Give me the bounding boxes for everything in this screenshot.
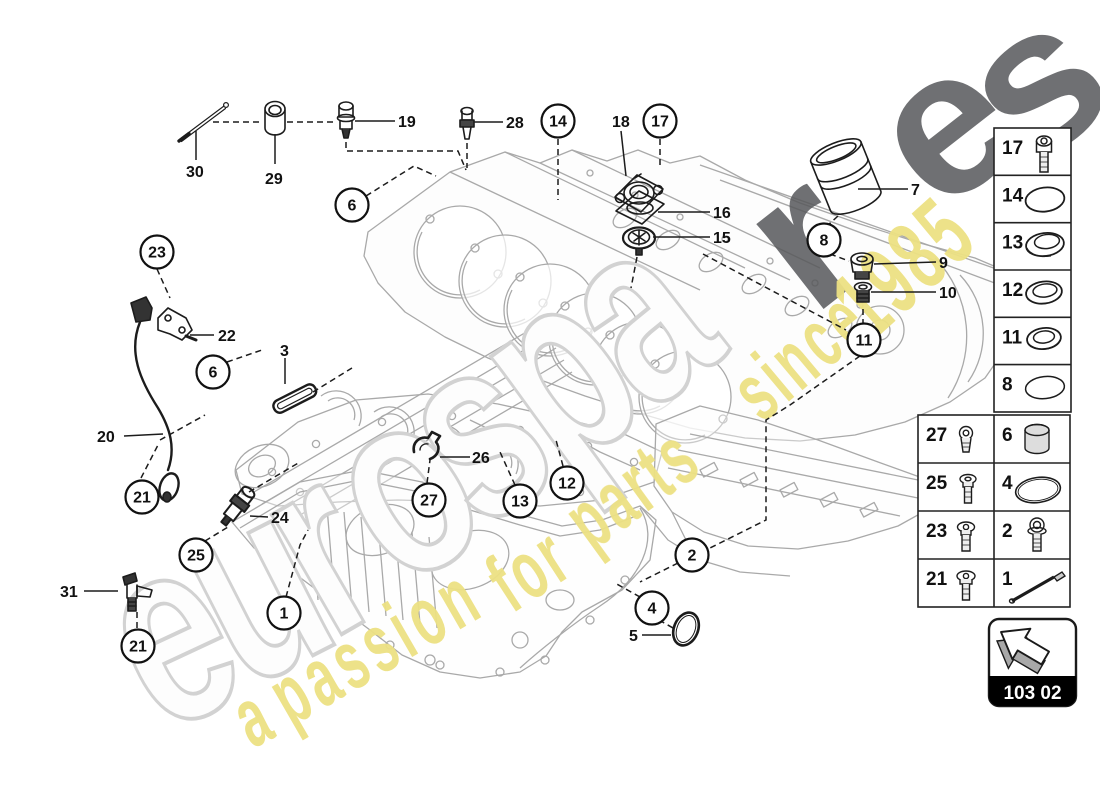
- svg-text:29: 29: [265, 171, 283, 188]
- svg-text:6: 6: [209, 365, 218, 382]
- svg-text:12: 12: [1002, 280, 1023, 301]
- svg-text:15: 15: [713, 230, 731, 247]
- svg-text:13: 13: [1002, 233, 1023, 254]
- svg-text:27: 27: [926, 425, 947, 446]
- svg-text:13: 13: [511, 494, 529, 511]
- svg-text:9: 9: [939, 255, 948, 272]
- svg-text:17: 17: [651, 114, 669, 131]
- svg-text:11: 11: [856, 333, 873, 350]
- svg-text:21: 21: [926, 569, 948, 590]
- svg-text:26: 26: [472, 450, 490, 467]
- svg-text:24: 24: [271, 510, 289, 527]
- svg-text:5: 5: [629, 628, 638, 645]
- svg-text:18: 18: [612, 114, 630, 131]
- svg-text:17: 17: [1002, 138, 1023, 159]
- svg-text:3: 3: [280, 343, 289, 360]
- svg-text:31: 31: [60, 584, 78, 601]
- svg-text:14: 14: [1002, 185, 1024, 206]
- svg-text:28: 28: [506, 115, 524, 132]
- svg-text:25: 25: [926, 473, 948, 494]
- svg-text:16: 16: [713, 205, 731, 222]
- svg-text:14: 14: [549, 114, 567, 131]
- svg-text:8: 8: [1002, 375, 1013, 396]
- svg-text:30: 30: [186, 164, 204, 181]
- svg-text:10: 10: [939, 285, 957, 302]
- svg-text:103 02: 103 02: [1003, 683, 1061, 704]
- svg-text:20: 20: [97, 429, 115, 446]
- svg-text:19: 19: [398, 114, 416, 131]
- svg-text:23: 23: [148, 245, 166, 262]
- svg-text:2: 2: [688, 548, 697, 565]
- svg-text:1: 1: [1002, 569, 1013, 590]
- svg-text:4: 4: [1002, 473, 1013, 494]
- svg-text:8: 8: [820, 233, 829, 250]
- svg-text:21: 21: [133, 490, 151, 507]
- svg-text:12: 12: [558, 476, 576, 493]
- svg-text:27: 27: [420, 493, 438, 510]
- svg-text:4: 4: [648, 601, 657, 618]
- svg-text:21: 21: [129, 639, 147, 656]
- svg-text:25: 25: [187, 548, 205, 565]
- svg-text:6: 6: [1002, 425, 1013, 446]
- svg-text:6: 6: [348, 198, 357, 215]
- svg-text:22: 22: [218, 328, 236, 345]
- svg-text:1: 1: [280, 606, 289, 623]
- svg-text:11: 11: [1002, 327, 1023, 348]
- svg-text:2: 2: [1002, 521, 1013, 542]
- svg-text:23: 23: [926, 521, 947, 542]
- svg-text:7: 7: [911, 182, 920, 199]
